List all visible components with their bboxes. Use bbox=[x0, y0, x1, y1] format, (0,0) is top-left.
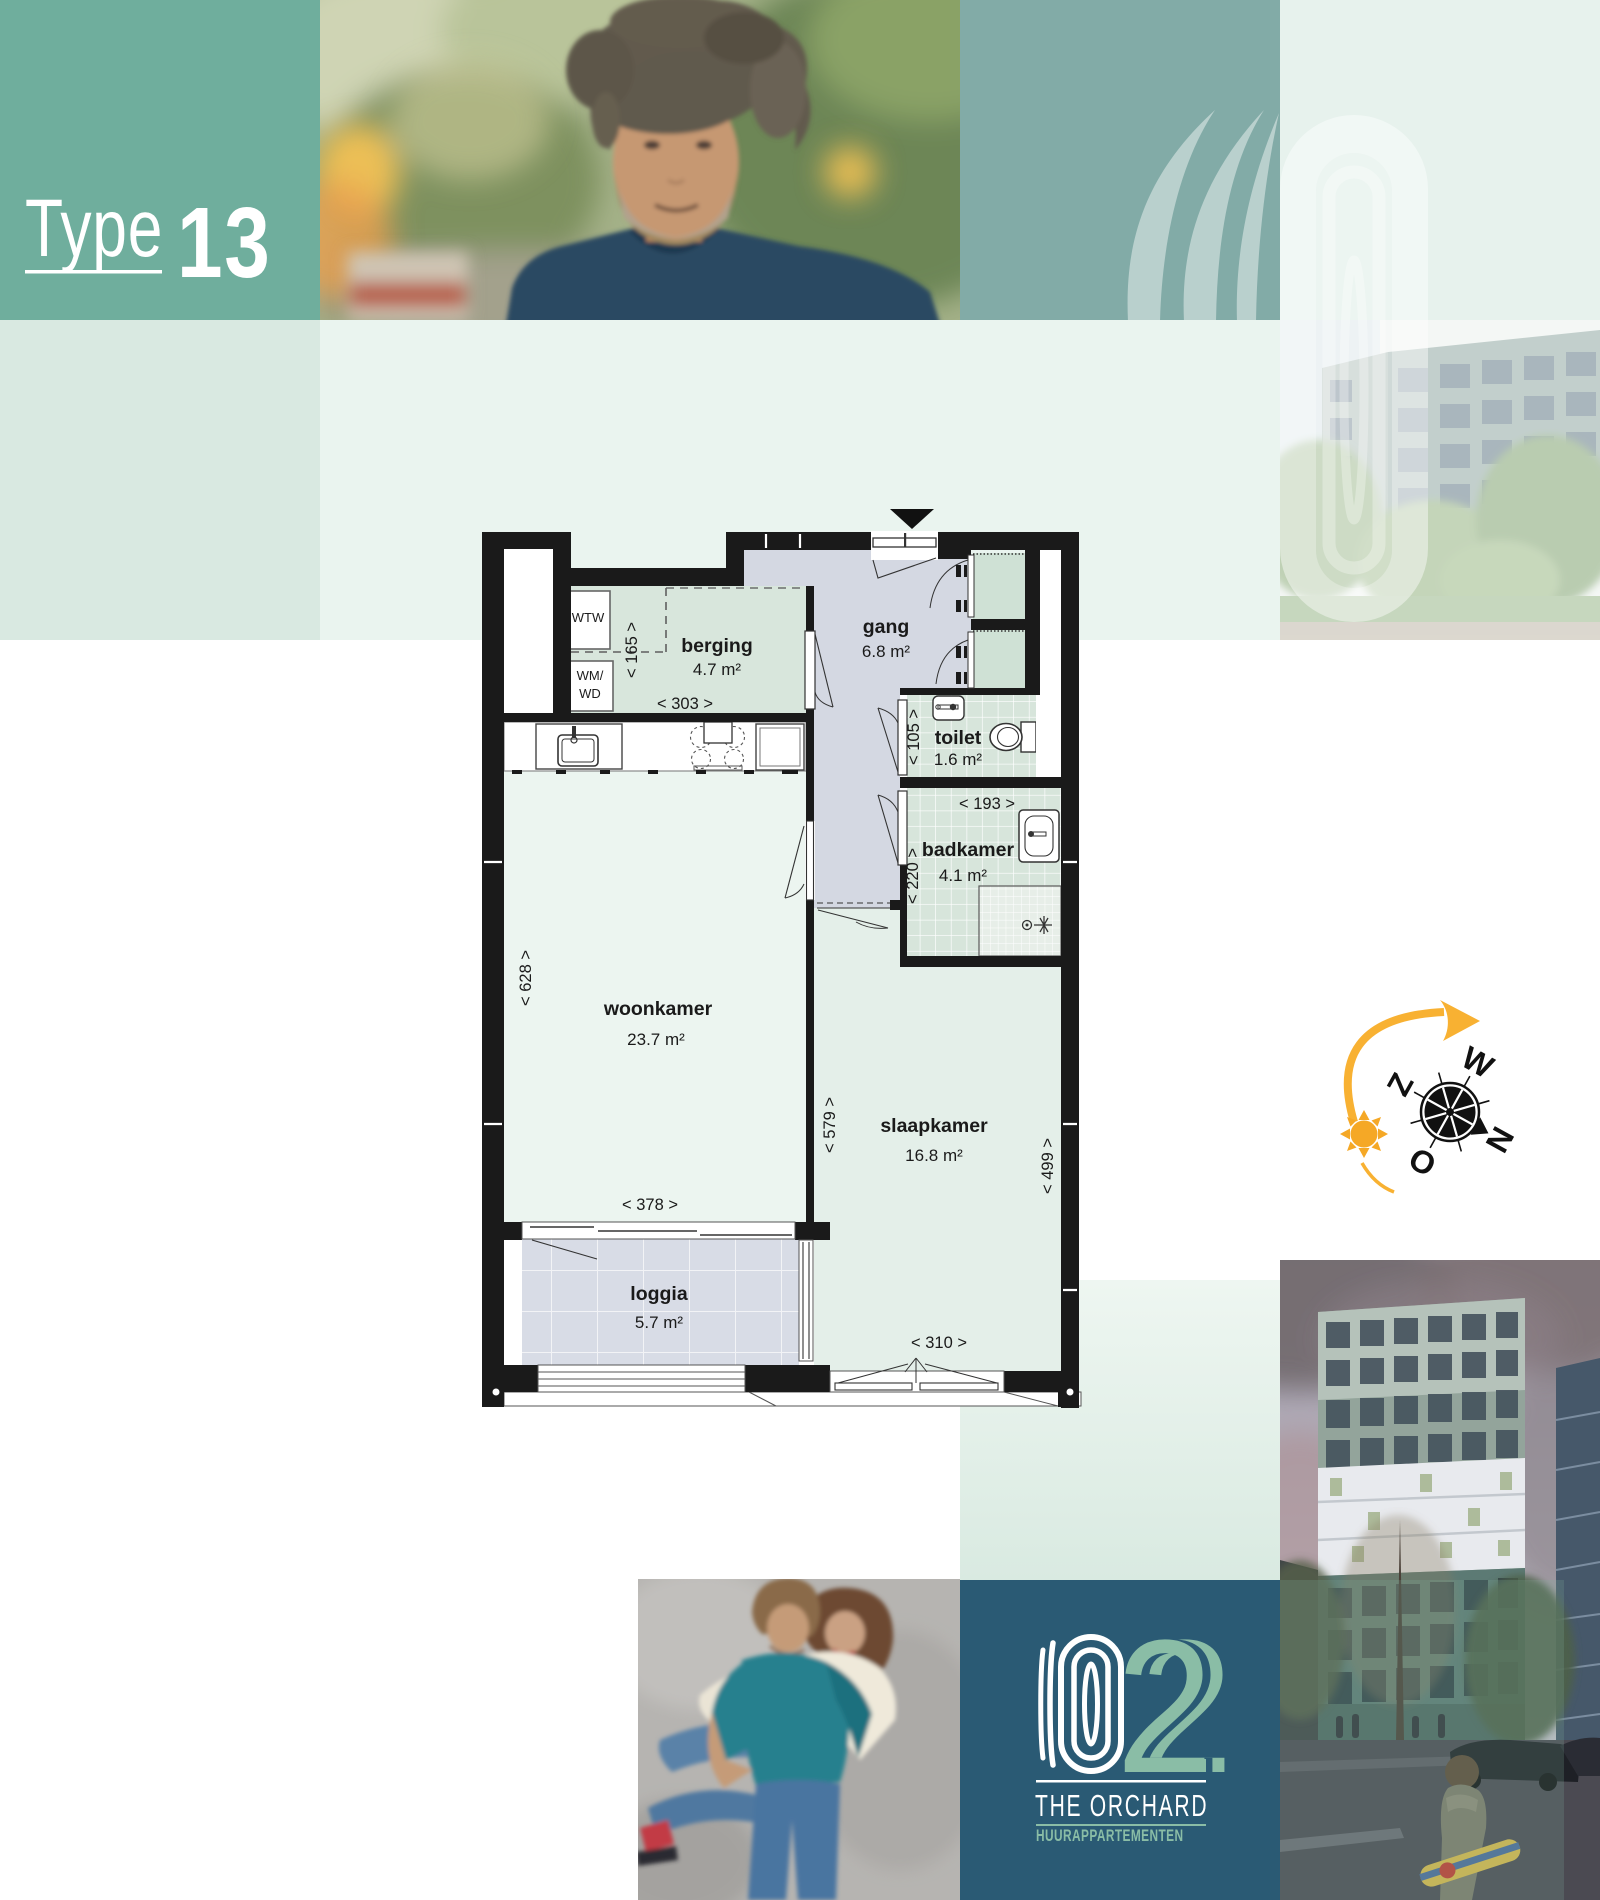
svg-text:16.8 m²: 16.8 m² bbox=[905, 1146, 963, 1165]
svg-text:< 165 >: < 165 > bbox=[623, 622, 641, 678]
svg-text:THE ORCHARD: THE ORCHARD bbox=[1035, 1788, 1208, 1823]
svg-text:4.7 m²: 4.7 m² bbox=[693, 660, 742, 679]
svg-text:< 105 >: < 105 > bbox=[905, 709, 923, 765]
svg-text:berging: berging bbox=[681, 635, 753, 657]
svg-text:slaapkamer: slaapkamer bbox=[880, 1115, 988, 1137]
svg-text:HUURAPPARTEMENTEN: HUURAPPARTEMENTEN bbox=[1036, 1827, 1184, 1845]
svg-text:badkamer: badkamer bbox=[922, 839, 1015, 861]
svg-text:loggia: loggia bbox=[630, 1283, 688, 1305]
svg-text:gang: gang bbox=[863, 616, 910, 638]
svg-text:< 579 >: < 579 > bbox=[821, 1097, 839, 1153]
svg-text:1.6 m²: 1.6 m² bbox=[934, 750, 983, 769]
svg-text:5.7 m²: 5.7 m² bbox=[635, 1313, 684, 1332]
svg-text:4.1 m²: 4.1 m² bbox=[939, 866, 988, 885]
svg-text:WD: WD bbox=[579, 686, 601, 701]
svg-text:< 310 >: < 310 > bbox=[911, 1334, 967, 1352]
svg-text:23.7 m²: 23.7 m² bbox=[627, 1030, 685, 1049]
svg-text:13: 13 bbox=[177, 187, 271, 299]
svg-text:< 303 >: < 303 > bbox=[657, 695, 713, 713]
svg-text:Type: Type bbox=[25, 183, 163, 274]
svg-text:toilet: toilet bbox=[935, 727, 982, 749]
svg-text:< 499 >: < 499 > bbox=[1039, 1138, 1057, 1194]
svg-text:< 193 >: < 193 > bbox=[959, 795, 1015, 813]
svg-text:WM/: WM/ bbox=[577, 668, 604, 683]
svg-text:< 220 >: < 220 > bbox=[904, 848, 922, 904]
svg-text:< 628 >: < 628 > bbox=[517, 950, 535, 1006]
svg-text:< 378 >: < 378 > bbox=[622, 1196, 678, 1214]
svg-text:WTW: WTW bbox=[572, 610, 605, 625]
svg-text:woonkamer: woonkamer bbox=[603, 998, 713, 1020]
svg-text:6.8 m²: 6.8 m² bbox=[862, 642, 911, 661]
